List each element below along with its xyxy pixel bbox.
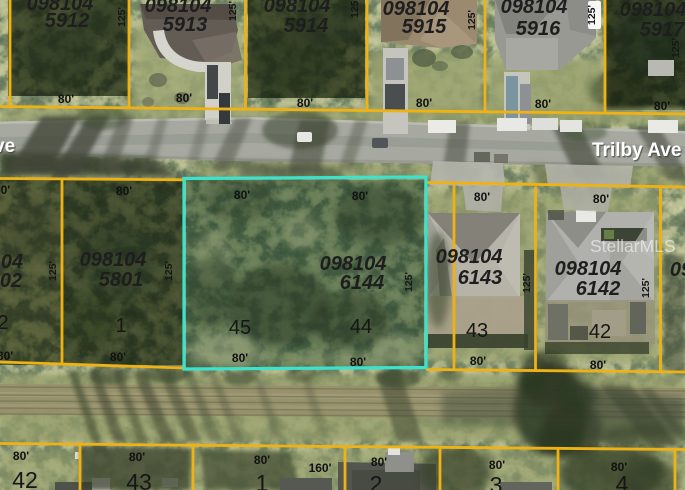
svg-text:5917: 5917	[640, 19, 685, 41]
svg-text:80': 80'	[116, 184, 132, 198]
svg-text:80': 80'	[590, 358, 606, 372]
svg-text:2: 2	[370, 471, 383, 490]
svg-text:80': 80'	[0, 183, 10, 197]
svg-text:2: 2	[0, 312, 9, 334]
svg-text:80': 80'	[611, 460, 627, 474]
svg-text:80': 80'	[654, 99, 670, 113]
svg-text:125': 125'	[47, 261, 59, 281]
svg-text:80': 80'	[254, 453, 270, 467]
svg-text:80': 80'	[58, 92, 74, 106]
svg-text:StellarMLS: StellarMLS	[590, 236, 676, 256]
svg-text:44: 44	[350, 316, 372, 338]
svg-text:6143: 6143	[458, 267, 503, 289]
svg-text:80': 80'	[371, 455, 387, 469]
svg-text:6142: 6142	[576, 278, 621, 300]
svg-text:5916: 5916	[516, 18, 561, 40]
svg-text:125': 125'	[466, 10, 478, 30]
svg-text:80': 80'	[110, 350, 126, 364]
svg-text:1: 1	[115, 315, 126, 337]
svg-text:098104: 098104	[620, 0, 685, 21]
svg-text:125': 125'	[116, 7, 128, 27]
svg-text:125': 125'	[586, 5, 598, 25]
svg-text:80': 80'	[593, 192, 609, 206]
svg-text:5915: 5915	[402, 16, 447, 38]
svg-text:5801: 5801	[99, 269, 144, 291]
svg-text:125': 125'	[403, 272, 415, 292]
svg-text:160': 160'	[309, 461, 332, 475]
svg-text:43: 43	[466, 320, 488, 342]
svg-text:80': 80'	[489, 458, 505, 472]
svg-text:125': 125'	[163, 261, 175, 281]
svg-text:80': 80'	[232, 351, 248, 365]
svg-text:80': 80'	[129, 450, 145, 464]
svg-text:125': 125'	[349, 0, 361, 18]
svg-text:098104: 098104	[501, 0, 568, 18]
svg-text:1: 1	[256, 470, 269, 490]
svg-text:42: 42	[12, 467, 38, 490]
svg-text:80': 80'	[470, 354, 486, 368]
svg-text:80': 80'	[297, 96, 313, 110]
svg-text:5914: 5914	[284, 15, 329, 37]
svg-text:5913: 5913	[163, 14, 208, 36]
svg-text:ve: ve	[0, 136, 15, 157]
svg-text:45: 45	[229, 317, 251, 339]
svg-text:098104: 098104	[555, 258, 622, 280]
svg-text:80': 80'	[535, 97, 551, 111]
svg-text:3: 3	[490, 472, 503, 490]
svg-text:125': 125'	[521, 273, 533, 293]
svg-text:80': 80'	[13, 449, 29, 463]
svg-text:125': 125'	[227, 1, 239, 21]
svg-text:80': 80'	[350, 355, 366, 369]
svg-text:80': 80'	[474, 190, 490, 204]
svg-text:43: 43	[126, 469, 152, 490]
svg-text:80': 80'	[352, 189, 368, 203]
svg-text:Trilby Ave: Trilby Ave	[592, 140, 681, 161]
svg-text:42: 42	[589, 321, 611, 343]
svg-text:80': 80'	[0, 349, 13, 363]
svg-text:5912: 5912	[45, 10, 90, 32]
svg-text:098104: 098104	[436, 246, 503, 268]
svg-text:80': 80'	[176, 91, 192, 105]
svg-text:09: 09	[670, 259, 685, 281]
svg-text:80': 80'	[234, 188, 250, 202]
svg-text:125': 125'	[640, 278, 652, 298]
svg-text:02: 02	[0, 270, 22, 292]
svg-text:098104: 098104	[80, 249, 147, 271]
svg-text:80': 80'	[416, 96, 432, 110]
svg-text:6144: 6144	[340, 272, 385, 294]
svg-text:125': 125'	[670, 38, 682, 58]
